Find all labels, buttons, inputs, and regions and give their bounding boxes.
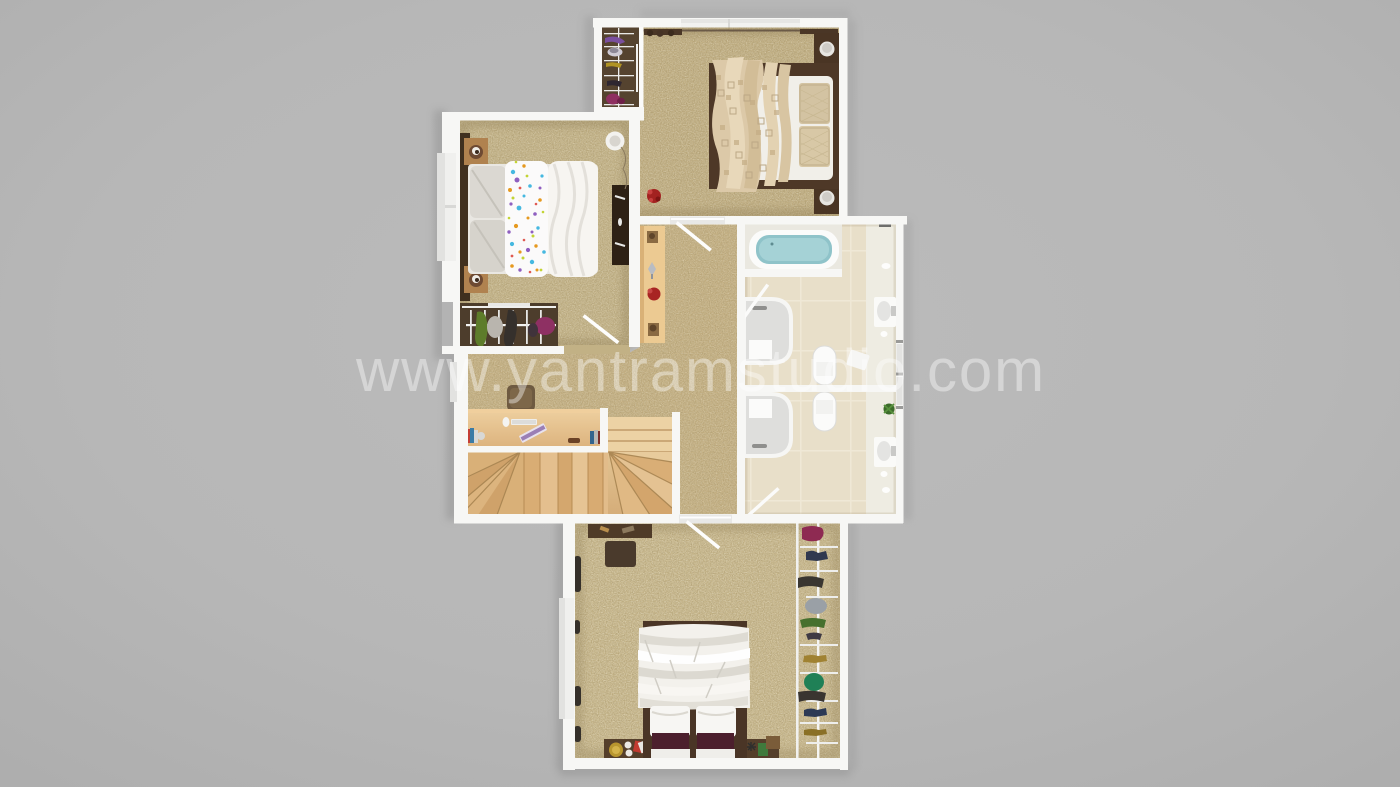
svg-text:www.yantramstudio.com: www.yantramstudio.com [355,337,1046,404]
